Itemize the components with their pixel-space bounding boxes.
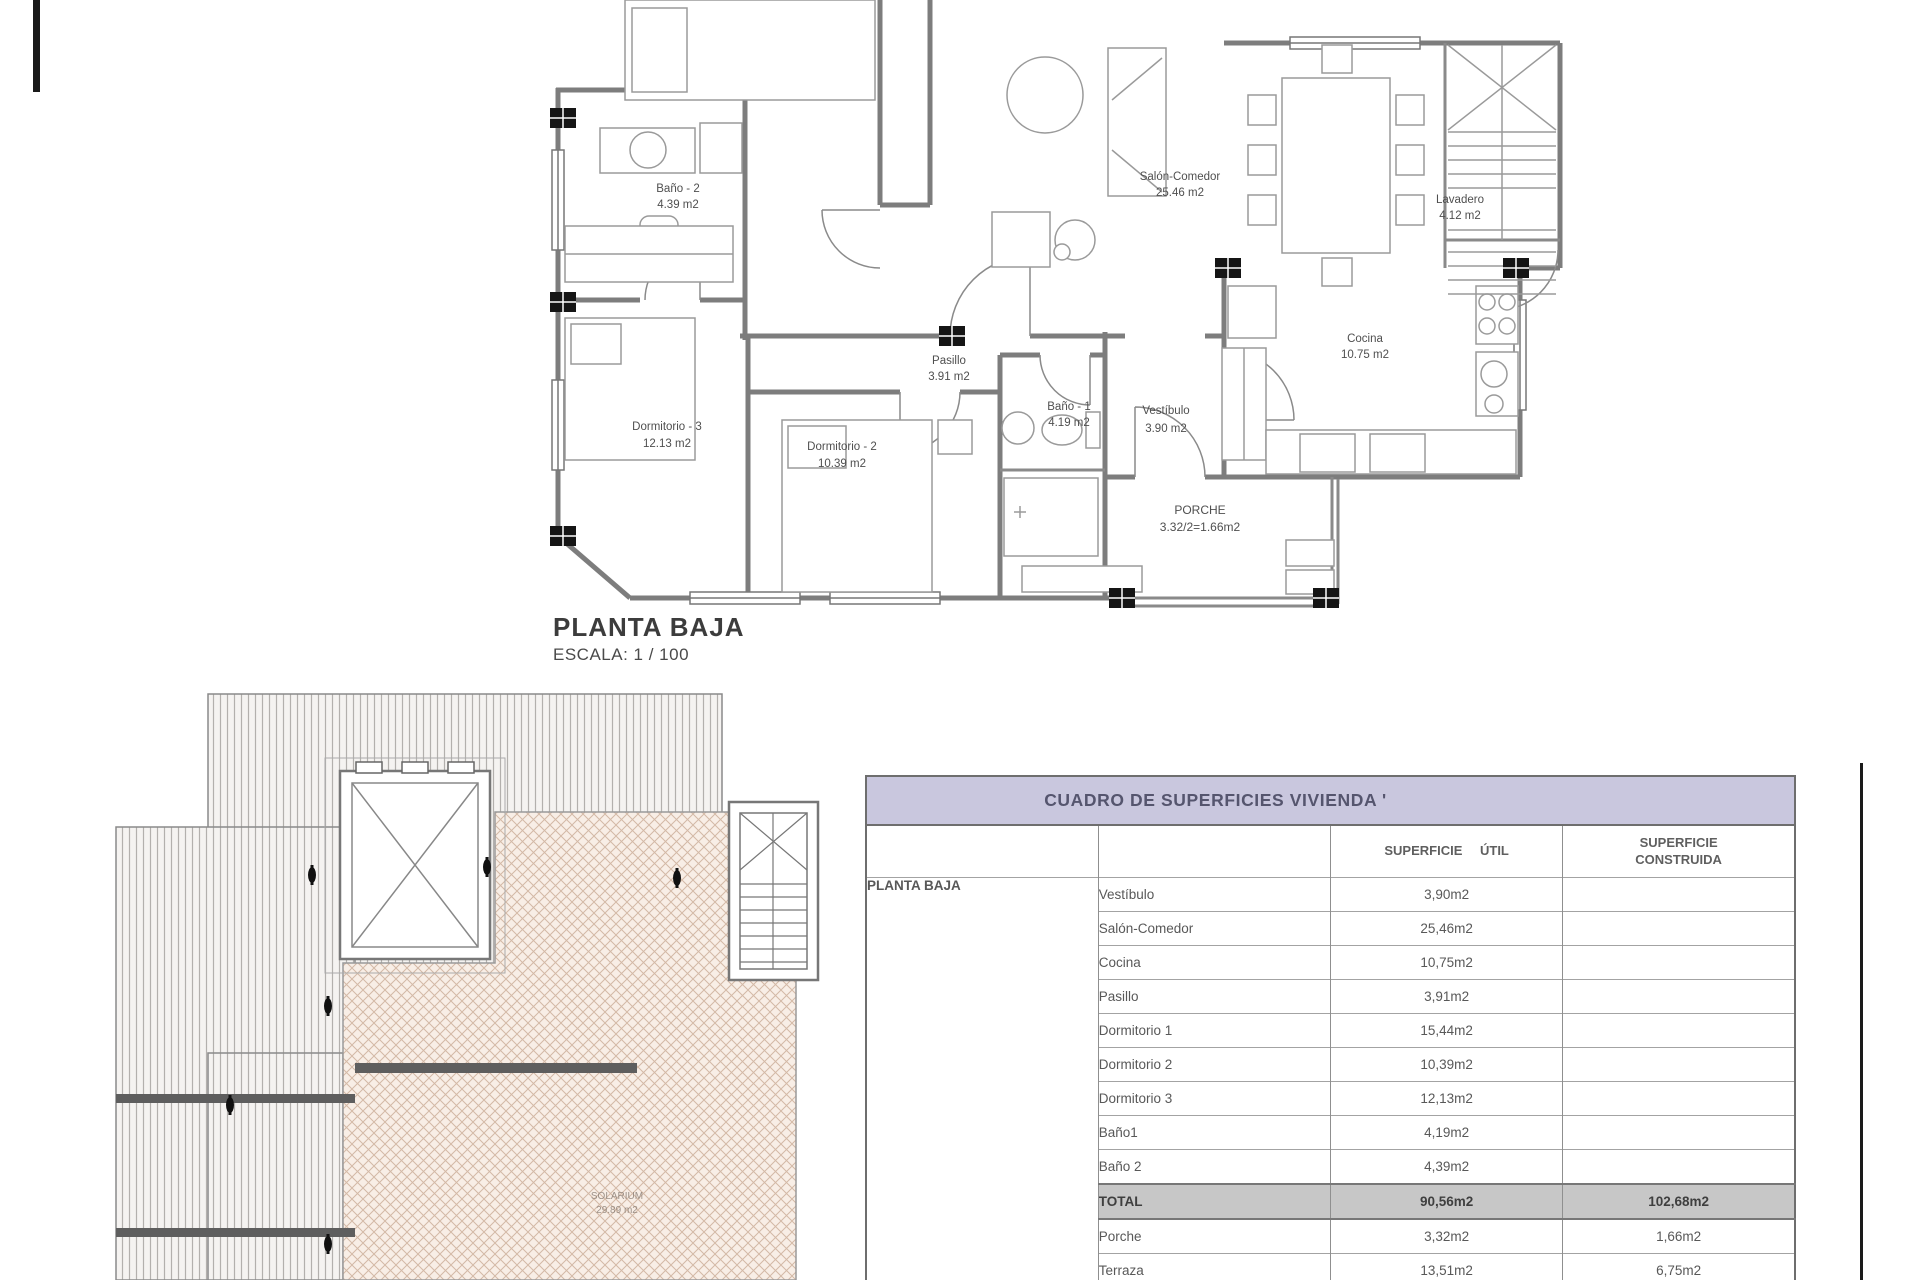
row-construida — [1563, 946, 1795, 980]
room-area-bano2: 4.39 m2 — [657, 199, 699, 211]
room-area-lavadero: 4.12 m2 — [1439, 210, 1481, 222]
plan-title-block: PLANTA BAJA ESCALA: 1 / 100 — [553, 612, 745, 665]
surface-table-wrap: CUADRO DE SUPERFICIES VIVIENDA ' SUPERFI… — [865, 775, 1800, 1280]
table-title: CUADRO DE SUPERFICIES VIVIENDA ' — [866, 776, 1795, 825]
row-name: Dormitorio 3 — [1098, 1082, 1330, 1116]
table-header-row: SUPERFICIE ÚTIL SUPERFICIE CONSTRUIDA — [866, 825, 1795, 878]
header-superficie-util: SUPERFICIE ÚTIL — [1331, 825, 1563, 878]
row-name: Salón-Comedor — [1098, 912, 1330, 946]
room-area-dorm3: 12.13 m2 — [643, 438, 691, 450]
row-util: 3,90m2 — [1331, 878, 1563, 912]
room-area-dorm2: 10.39 m2 — [818, 458, 866, 470]
row-construida — [1563, 1014, 1795, 1048]
row-util: 15,44m2 — [1331, 1014, 1563, 1048]
row-name: Dormitorio 2 — [1098, 1048, 1330, 1082]
row-group-planta-baja: PLANTA BAJA — [866, 878, 1098, 1280]
row-util: 3,32m2 — [1331, 1219, 1563, 1254]
row-name: Terraza — [1098, 1254, 1330, 1280]
room-label-vestibulo: Vestíbulo — [1142, 405, 1189, 417]
row-name: Baño 2 — [1098, 1150, 1330, 1185]
row-name: Pasillo — [1098, 980, 1330, 1014]
row-construida — [1563, 1150, 1795, 1185]
header-blank-2 — [1098, 825, 1330, 878]
room-area-vestibulo: 3.90 m2 — [1145, 423, 1187, 435]
header-blank-1 — [866, 825, 1098, 878]
room-area-pasillo: 3.91 m2 — [928, 371, 970, 383]
floor-plan-drawing: Baño - 2 4.39 m2 Salón-Comedor 25.46 m2 … — [430, 0, 1580, 690]
room-label-pasillo: Pasillo — [932, 355, 966, 367]
room-label-porche: PORCHE — [1174, 503, 1225, 517]
row-construida — [1563, 1116, 1795, 1150]
row-name: Vestíbulo — [1098, 878, 1330, 912]
row-construida — [1563, 878, 1795, 912]
room-area-bano1: 4.19 m2 — [1048, 417, 1090, 429]
sheet-border-top-left — [33, 0, 40, 92]
room-label-bano2: Baño - 2 — [656, 183, 699, 195]
plan-scale: ESCALA: 1 / 100 — [553, 645, 745, 665]
row-construida — [1563, 980, 1795, 1014]
row-name: Baño1 — [1098, 1116, 1330, 1150]
table-row: PLANTA BAJA Vestíbulo 3,90m2 — [866, 878, 1795, 912]
row-util: 25,46m2 — [1331, 912, 1563, 946]
row-construida: 1,66m2 — [1563, 1219, 1795, 1254]
row-util: 12,13m2 — [1331, 1082, 1563, 1116]
row-construida — [1563, 912, 1795, 946]
total-util: 90,56m2 — [1331, 1184, 1563, 1219]
plan-title: PLANTA BAJA — [553, 612, 745, 643]
header-superficie-construida: SUPERFICIE CONSTRUIDA — [1563, 825, 1795, 878]
sheet-border-right — [1860, 763, 1863, 1280]
roof-skylight — [325, 758, 505, 973]
row-construida — [1563, 1082, 1795, 1116]
room-label-dorm2: Dormitorio - 2 — [807, 441, 877, 453]
header-construida-line1: SUPERFICIE — [1640, 835, 1718, 850]
row-util: 4,39m2 — [1331, 1150, 1563, 1185]
room-label-bano1: Baño - 1 — [1047, 401, 1090, 413]
roof-stairs-detail — [729, 802, 818, 980]
room-area-cocina: 10.75 m2 — [1341, 349, 1389, 361]
plan-furniture — [565, 0, 1556, 594]
row-construida: 6,75m2 — [1563, 1254, 1795, 1280]
row-util: 10,39m2 — [1331, 1048, 1563, 1082]
row-util: 3,91m2 — [1331, 980, 1563, 1014]
room-label-dorm3: Dormitorio - 3 — [632, 421, 702, 433]
row-name: Porche — [1098, 1219, 1330, 1254]
row-util: 4,19m2 — [1331, 1116, 1563, 1150]
row-util: 13,51m2 — [1331, 1254, 1563, 1280]
row-name: Cocina — [1098, 946, 1330, 980]
surface-table: CUADRO DE SUPERFICIES VIVIENDA ' SUPERFI… — [865, 775, 1796, 1280]
header-construida-line2: CONSTRUIDA — [1635, 852, 1722, 867]
total-label: TOTAL — [1098, 1184, 1330, 1219]
solarium-area-label: 29.89 m2 — [596, 1205, 638, 1216]
roof-plan-drawing: SOLARIUM 29.89 m2 — [100, 690, 870, 1280]
room-area-salon: 25.46 m2 — [1156, 187, 1204, 199]
table-title-row: CUADRO DE SUPERFICIES VIVIENDA ' — [866, 776, 1795, 825]
room-label-salon: Salón-Comedor — [1140, 171, 1221, 183]
row-util: 10,75m2 — [1331, 946, 1563, 980]
room-area-porche: 3.32/2=1.66m2 — [1160, 520, 1241, 534]
total-construida: 102,68m2 — [1563, 1184, 1795, 1219]
room-label-cocina: Cocina — [1347, 333, 1383, 345]
solarium-label: SOLARIUM — [591, 1191, 643, 1202]
row-name: Dormitorio 1 — [1098, 1014, 1330, 1048]
row-construida — [1563, 1048, 1795, 1082]
room-label-lavadero: Lavadero — [1436, 194, 1484, 206]
